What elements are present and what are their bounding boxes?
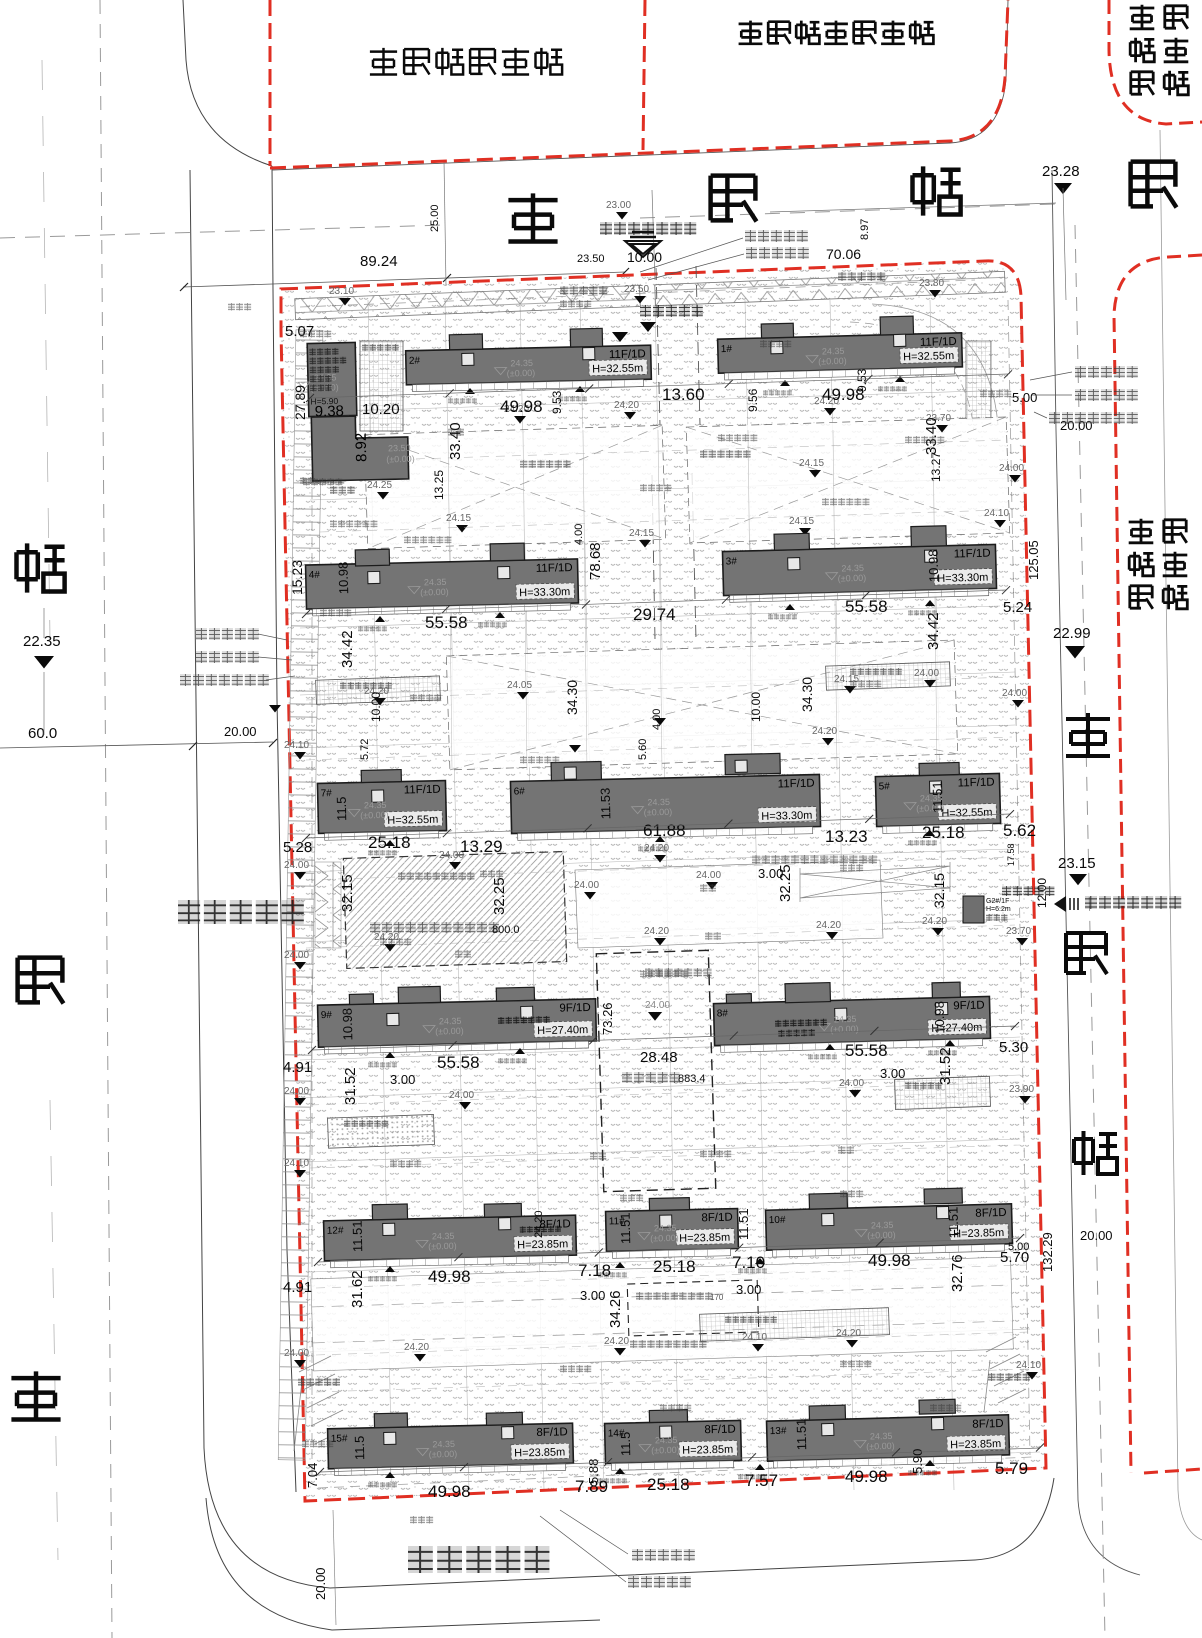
svg-text:7.10: 7.10 — [732, 1253, 765, 1272]
svg-text:800.0: 800.0 — [492, 924, 520, 936]
svg-text:11.5: 11.5 — [618, 1432, 634, 1457]
svg-text:H=32.55m: H=32.55m — [903, 350, 954, 363]
svg-text:8F/1D: 8F/1D — [701, 1212, 733, 1225]
svg-text:24.00: 24.00 — [284, 1086, 309, 1097]
svg-text:(±0.00): (±0.00) — [818, 356, 847, 367]
svg-text:24.00: 24.00 — [284, 950, 309, 961]
svg-text:8F/1D: 8F/1D — [972, 1418, 1004, 1431]
svg-text:8#: 8# — [717, 1008, 729, 1019]
svg-text:13#: 13# — [770, 1426, 787, 1437]
svg-text:5.79: 5.79 — [995, 1459, 1028, 1478]
svg-text:(±0.00): (±0.00) — [360, 810, 389, 821]
svg-text:32.76: 32.76 — [949, 1254, 966, 1292]
svg-text:24.15: 24.15 — [799, 458, 824, 469]
svg-text:24.20: 24.20 — [533, 1210, 545, 1238]
svg-text:H=33.30m: H=33.30m — [937, 572, 988, 585]
svg-text:H=32.55m: H=32.55m — [387, 814, 438, 827]
svg-text:24.15: 24.15 — [629, 528, 654, 539]
svg-text:60.0: 60.0 — [28, 725, 57, 742]
svg-text:55.58: 55.58 — [437, 1053, 480, 1072]
svg-text:24.20: 24.20 — [644, 843, 669, 854]
svg-text:34.30: 34.30 — [564, 680, 580, 715]
svg-text:9.53: 9.53 — [550, 390, 564, 414]
svg-text:(±0.00): (±0.00) — [428, 1241, 457, 1252]
svg-text:883.4: 883.4 — [678, 1073, 706, 1085]
svg-text:24.25: 24.25 — [367, 480, 392, 491]
svg-text:24.35: 24.35 — [871, 1220, 894, 1231]
svg-text:25.18: 25.18 — [922, 823, 965, 842]
svg-text:4#: 4# — [309, 570, 321, 581]
svg-text:11.5: 11.5 — [334, 796, 350, 821]
svg-text:24.00: 24.00 — [449, 1090, 474, 1101]
svg-text:34.30: 34.30 — [799, 677, 815, 712]
svg-text:23.50: 23.50 — [624, 284, 649, 295]
svg-text:24.35: 24.35 — [870, 1431, 893, 1442]
svg-text:(±0.00): (±0.00) — [429, 1449, 458, 1460]
svg-text:11.53: 11.53 — [598, 788, 614, 820]
svg-text:55.58: 55.58 — [845, 597, 888, 616]
svg-text:10.00: 10.00 — [369, 692, 383, 722]
svg-text:25.18: 25.18 — [653, 1257, 696, 1276]
svg-text:9F/1D: 9F/1D — [953, 1000, 985, 1013]
svg-text:5.00: 5.00 — [1008, 1241, 1029, 1253]
svg-text:10.98: 10.98 — [925, 549, 941, 582]
svg-text:(±0.00): (±0.00) — [651, 1445, 680, 1456]
svg-text:H=32.55m: H=32.55m — [592, 362, 643, 375]
svg-text:13.23: 13.23 — [825, 827, 868, 846]
svg-text:23.90: 23.90 — [1009, 1084, 1034, 1095]
svg-text:5.72: 5.72 — [359, 739, 371, 760]
svg-text:61.88: 61.88 — [643, 821, 686, 840]
svg-text:(±0.00): (±0.00) — [838, 573, 867, 584]
svg-text:24.15: 24.15 — [446, 513, 471, 524]
svg-text:11F/1D: 11F/1D — [536, 562, 573, 575]
svg-text:3.00: 3.00 — [580, 1288, 605, 1303]
svg-text:24.20: 24.20 — [812, 726, 837, 737]
svg-text:12#: 12# — [327, 1225, 344, 1236]
svg-text:24.10: 24.10 — [984, 508, 1009, 519]
svg-text:13.27: 13.27 — [929, 452, 943, 482]
svg-text:20.00: 20.00 — [313, 1567, 328, 1600]
svg-text:70.06: 70.06 — [826, 246, 861, 262]
svg-text:5.60: 5.60 — [637, 739, 649, 760]
svg-text:(±0.00): (±0.00) — [867, 1230, 896, 1241]
svg-text:H=27.40m: H=27.40m — [537, 1024, 588, 1037]
svg-text:27.89: 27.89 — [292, 385, 308, 420]
svg-text:24.35: 24.35 — [510, 358, 533, 369]
svg-text:49.98: 49.98 — [845, 1467, 888, 1486]
svg-text:5#: 5# — [878, 781, 890, 792]
svg-text:(±0.00): (±0.00) — [435, 1026, 464, 1037]
svg-text:24.20: 24.20 — [604, 1336, 629, 1347]
svg-text:49.98: 49.98 — [868, 1251, 911, 1270]
svg-text:31.52: 31.52 — [937, 1047, 954, 1085]
svg-text:10.20: 10.20 — [362, 401, 400, 418]
svg-text:H=23.85m: H=23.85m — [679, 1232, 730, 1245]
svg-text:10.00: 10.00 — [627, 249, 662, 265]
svg-text:23.00: 23.00 — [606, 200, 631, 211]
svg-text:24.15: 24.15 — [789, 516, 814, 527]
svg-text:9#: 9# — [321, 1010, 333, 1021]
svg-text:25.18: 25.18 — [647, 1475, 690, 1494]
svg-text:22.35: 22.35 — [23, 633, 61, 650]
svg-text:3#: 3# — [726, 556, 738, 567]
svg-text:(±0.00): (±0.00) — [386, 454, 415, 465]
svg-text:H=23.85m: H=23.85m — [682, 1444, 733, 1457]
svg-text:89.24: 89.24 — [360, 253, 398, 270]
svg-text:H=32.55m: H=32.55m — [941, 807, 992, 820]
svg-text:20.00: 20.00 — [1080, 1228, 1113, 1243]
svg-text:23.10: 23.10 — [329, 286, 354, 297]
svg-text:24.20: 24.20 — [922, 916, 947, 927]
svg-text:7.04: 7.04 — [305, 1463, 320, 1488]
svg-text:170: 170 — [710, 1293, 724, 1302]
svg-text:24.20: 24.20 — [816, 920, 841, 931]
svg-text:22.99: 22.99 — [1053, 625, 1091, 642]
svg-text:H=23.85m: H=23.85m — [514, 1446, 565, 1459]
svg-text:17.58: 17.58 — [1006, 843, 1016, 866]
svg-text:13.60: 13.60 — [662, 385, 705, 404]
svg-text:49.98: 49.98 — [428, 1482, 471, 1501]
svg-text:24.20: 24.20 — [644, 926, 669, 937]
svg-text:24.35: 24.35 — [439, 1016, 462, 1027]
svg-text:4.91: 4.91 — [283, 1059, 312, 1076]
svg-text:3.00: 3.00 — [736, 1282, 761, 1297]
svg-text:31.52: 31.52 — [342, 1067, 359, 1105]
svg-text:24.00: 24.00 — [645, 1000, 670, 1011]
svg-text:24.35: 24.35 — [432, 1439, 455, 1450]
svg-text:G2#/1F: G2#/1F — [986, 898, 1009, 905]
svg-text:11.51: 11.51 — [930, 781, 946, 813]
svg-text:7#: 7# — [321, 788, 333, 799]
svg-text:H=6.2m: H=6.2m — [986, 906, 1011, 913]
svg-text:11F/1D: 11F/1D — [958, 777, 995, 790]
svg-text:32.15: 32.15 — [339, 874, 356, 912]
svg-text:32.15: 32.15 — [931, 873, 947, 908]
svg-text:24.35: 24.35 — [834, 1014, 857, 1025]
svg-text:24.35: 24.35 — [424, 577, 447, 588]
svg-text:23.50: 23.50 — [577, 253, 605, 265]
svg-text:25.00: 25.00 — [429, 204, 441, 232]
svg-text:23.15: 23.15 — [1058, 855, 1096, 872]
svg-text:55.58: 55.58 — [845, 1041, 888, 1060]
svg-text:7.18: 7.18 — [578, 1261, 611, 1280]
svg-text:4.00: 4.00 — [651, 709, 663, 730]
svg-text:8F/1D: 8F/1D — [536, 1426, 568, 1439]
svg-text:3.00: 3.00 — [390, 1072, 415, 1087]
svg-text:24.00: 24.00 — [284, 860, 309, 871]
svg-text:H=23.85m: H=23.85m — [517, 1238, 568, 1251]
svg-text:11.51: 11.51 — [945, 1207, 961, 1239]
svg-text:125.05: 125.05 — [1026, 540, 1041, 580]
svg-text:55.58: 55.58 — [425, 613, 468, 632]
svg-text:32.25: 32.25 — [777, 864, 794, 902]
svg-text:24.35: 24.35 — [647, 797, 670, 808]
svg-text:23.28: 23.28 — [1042, 163, 1080, 180]
svg-text:(±0.00): (±0.00) — [866, 1441, 895, 1452]
svg-text:4.91: 4.91 — [283, 1279, 312, 1296]
svg-text:5.62: 5.62 — [1003, 821, 1036, 840]
svg-text:10#: 10# — [769, 1215, 786, 1226]
svg-text:9.56: 9.56 — [746, 388, 760, 412]
svg-text:11F/1D: 11F/1D — [954, 548, 991, 561]
svg-text:24.35: 24.35 — [364, 800, 387, 811]
svg-text:11.51: 11.51 — [618, 1212, 634, 1244]
svg-text:8F/1D: 8F/1D — [975, 1207, 1007, 1220]
svg-text:4.00: 4.00 — [573, 524, 585, 545]
svg-text:29.74: 29.74 — [633, 605, 676, 624]
svg-text:24.00: 24.00 — [284, 1348, 309, 1359]
svg-text:24.00: 24.00 — [1002, 688, 1027, 699]
svg-text:11.51: 11.51 — [793, 1418, 809, 1450]
svg-text:34.42: 34.42 — [339, 630, 356, 668]
svg-text:13.25: 13.25 — [432, 470, 446, 500]
svg-text:24.20: 24.20 — [614, 400, 639, 411]
svg-text:24.05: 24.05 — [507, 680, 532, 691]
svg-text:(±0.00): (±0.00) — [650, 1233, 679, 1244]
svg-text:8F/1D: 8F/1D — [704, 1424, 736, 1437]
svg-text:34.42: 34.42 — [925, 612, 942, 650]
svg-text:1#: 1# — [721, 344, 733, 355]
svg-text:24.35: 24.35 — [841, 563, 864, 574]
svg-text:31.62: 31.62 — [349, 1270, 366, 1308]
svg-text:24.00: 24.00 — [696, 870, 721, 881]
svg-text:10.00: 10.00 — [749, 692, 763, 722]
svg-text:11.51: 11.51 — [350, 1220, 366, 1252]
svg-text:11.5: 11.5 — [352, 1436, 368, 1461]
svg-text:73.26: 73.26 — [600, 1002, 615, 1035]
svg-text:24.10: 24.10 — [284, 740, 309, 751]
svg-text:24.10: 24.10 — [284, 1158, 309, 1169]
svg-text:7.57: 7.57 — [745, 1471, 778, 1490]
svg-text:24.35: 24.35 — [654, 1223, 677, 1234]
svg-text:20.00: 20.00 — [224, 724, 257, 739]
svg-text:3.00: 3.00 — [880, 1066, 905, 1081]
svg-text:28.48: 28.48 — [640, 1049, 678, 1066]
svg-text:49.98: 49.98 — [500, 397, 543, 416]
svg-text:24.10: 24.10 — [1016, 1360, 1041, 1371]
svg-text:8.97: 8.97 — [859, 219, 871, 240]
svg-text:5.28: 5.28 — [283, 839, 312, 856]
svg-text:15#: 15# — [331, 1433, 348, 1444]
svg-text:8.92: 8.92 — [353, 433, 371, 463]
svg-text:H=33.30m: H=33.30m — [519, 586, 570, 599]
svg-text:24.10: 24.10 — [742, 1332, 767, 1343]
svg-text:132.29: 132.29 — [1040, 1232, 1055, 1272]
svg-text:10.98: 10.98 — [335, 562, 351, 595]
svg-text:24.20: 24.20 — [404, 1342, 429, 1353]
svg-text:24.20: 24.20 — [836, 1328, 861, 1339]
svg-text:(±0.00): (±0.00) — [420, 587, 449, 598]
svg-text:9F/1D: 9F/1D — [559, 1002, 591, 1015]
svg-text:24.35: 24.35 — [432, 1231, 455, 1242]
svg-text:15.23: 15.23 — [289, 560, 305, 595]
svg-text:34.26: 34.26 — [607, 1290, 624, 1328]
svg-text:24.00: 24.00 — [914, 668, 939, 679]
svg-text:5.24: 5.24 — [1003, 599, 1032, 616]
svg-text:10.98: 10.98 — [340, 1008, 356, 1041]
svg-text:11F/1D: 11F/1D — [778, 778, 815, 791]
svg-text:6#: 6# — [514, 786, 526, 797]
svg-text:23.80: 23.80 — [919, 278, 944, 289]
svg-text:49.98: 49.98 — [428, 1267, 471, 1286]
svg-text:5.30: 5.30 — [999, 1039, 1028, 1056]
svg-text:32.25: 32.25 — [491, 877, 508, 915]
svg-text:5.00: 5.00 — [1012, 390, 1037, 405]
svg-text:2#: 2# — [409, 355, 421, 366]
svg-text:24.00: 24.00 — [839, 1078, 864, 1089]
svg-text:24.35: 24.35 — [655, 1435, 678, 1446]
svg-text:24.00: 24.00 — [574, 880, 599, 891]
svg-text:(±0.00): (±0.00) — [644, 807, 673, 818]
svg-text:24.35: 24.35 — [822, 346, 845, 357]
svg-text:24.00: 24.00 — [999, 463, 1024, 474]
svg-text:23.50: 23.50 — [388, 443, 411, 454]
svg-text:(±0.00): (±0.00) — [507, 368, 536, 379]
svg-text:23.70: 23.70 — [1006, 926, 1031, 937]
svg-text:78.68: 78.68 — [587, 542, 604, 580]
svg-text:11.51: 11.51 — [736, 1208, 751, 1240]
svg-text:(±0.00): (±0.00) — [830, 1024, 859, 1035]
svg-text:13.29: 13.29 — [460, 837, 503, 856]
svg-text:11F/1D: 11F/1D — [404, 784, 441, 797]
